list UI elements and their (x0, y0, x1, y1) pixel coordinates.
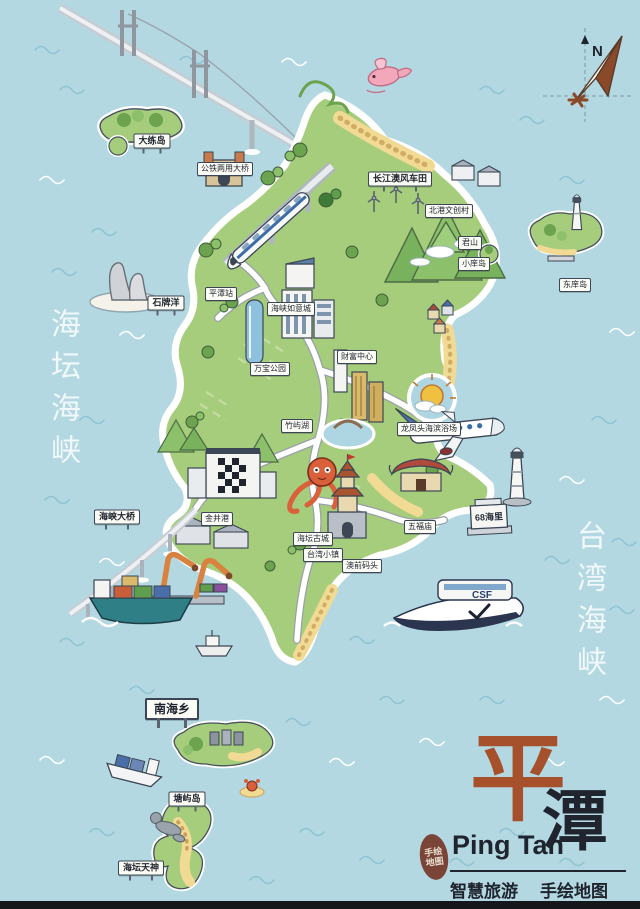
sea-name-haitan-strait: 海坛海峡 (40, 308, 84, 476)
pink-fish (361, 53, 415, 95)
tagline-hand-drawn-map: 手绘地图 (540, 877, 608, 902)
ferry: CSF (384, 580, 523, 630)
crab (240, 779, 264, 797)
dongxiang-island (480, 195, 602, 263)
pingtan-hand-drawn-map: 68海里 (0, 0, 640, 909)
title-latin: Ping Tan (452, 830, 564, 861)
zhuyu-lake (322, 420, 374, 448)
compass: N (543, 28, 632, 122)
seal-line-2: 地图 (425, 856, 444, 869)
title-block: 平 潭 Ping Tan 手绘 地图 智慧旅游 手绘地图 (418, 730, 628, 905)
bridge-gate-building (204, 152, 244, 186)
shipaiyang-rocks (90, 263, 162, 312)
lighthouse-southeast (503, 448, 531, 506)
compass-north-label: N (592, 43, 603, 60)
sea-name-taiwan-strait: 台湾海峡 (566, 520, 610, 688)
dalian-island (100, 109, 182, 155)
tangyu-island (146, 800, 211, 889)
title-divider (450, 870, 626, 872)
cargo-boat (104, 749, 165, 789)
small-boat (196, 630, 232, 656)
nanhai-island (174, 722, 273, 766)
container-ship (82, 576, 192, 626)
tagline-smart-tourism: 智慧旅游 (450, 877, 518, 902)
bottom-black-bar (0, 901, 640, 909)
hand-drawn-map-seal: 手绘 地图 (417, 832, 451, 881)
svg-text:68海里: 68海里 (475, 510, 504, 522)
svg-text:CSF: CSF (472, 590, 492, 601)
